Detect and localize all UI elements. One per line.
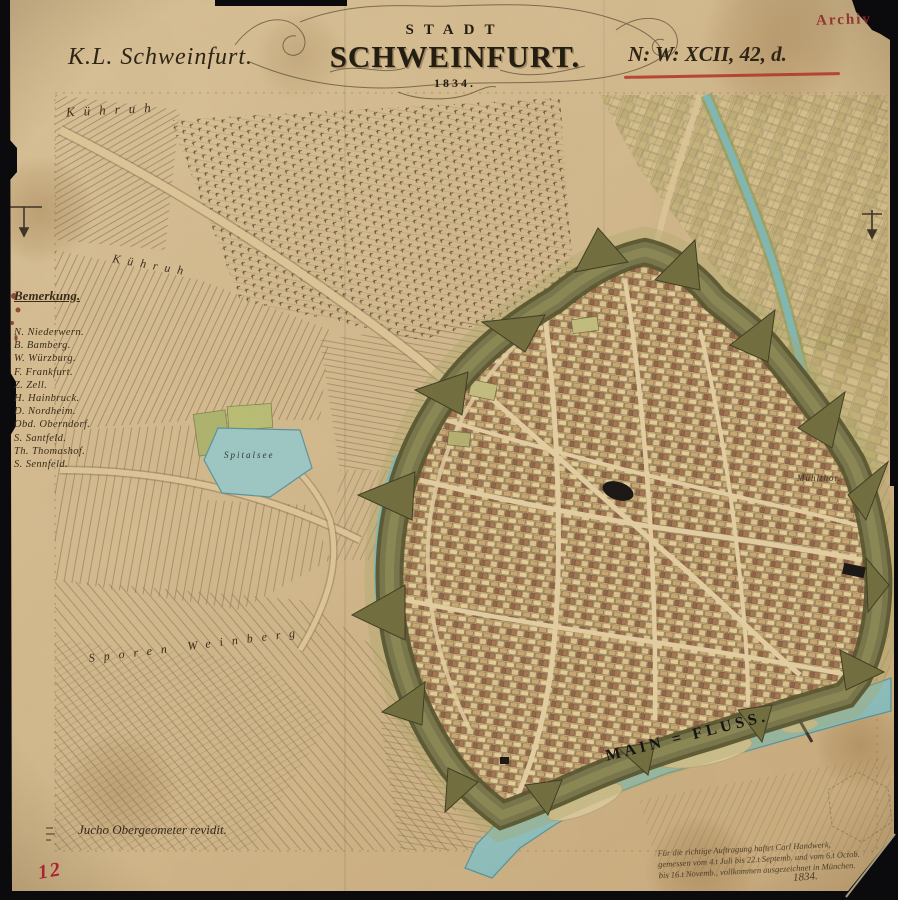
certification-year: 1834.: [793, 870, 819, 884]
map-artwork: [0, 0, 898, 900]
legend-item: F. Frankfurt.: [14, 366, 124, 379]
legend-item: W. Würzburg.: [14, 352, 124, 365]
map-title-block: STADT SCHWEINFURT. 1834.: [300, 22, 610, 91]
map-photo: Archiv K.L. Schweinfurt. STADT SCHWEINFU…: [0, 0, 898, 900]
series-label: K.L. Schweinfurt.: [68, 44, 253, 71]
map-title-upper: STADT: [300, 22, 610, 39]
legend-item: N. Niederwern.: [14, 326, 124, 339]
legend-item: Z. Zell.: [14, 379, 124, 392]
legend-item: Th. Thomashof.: [14, 445, 124, 458]
lake-label: Spitalsee: [224, 450, 275, 460]
revision-note: Jucho Obergeometer revidit.: [78, 822, 227, 838]
legend-item: S. Sennfeld.: [14, 458, 124, 471]
legend-item: H. Hainbruck.: [14, 392, 124, 405]
sheet-number: 12: [36, 858, 64, 885]
archive-stamp: Archiv: [816, 11, 872, 30]
legend-item: Obd. Oberndorf.: [14, 418, 124, 431]
legend-item: D. Nordheim.: [14, 405, 124, 418]
map-content: [0, 0, 898, 900]
map-title-year: 1834.: [300, 76, 610, 91]
mill-gate-label: Mühlthor.: [797, 473, 841, 483]
sheet-reference: N: W: XCII, 42, d.: [628, 42, 787, 67]
legend-item: S. Santfeld.: [14, 432, 124, 445]
legend: Bemerkung. N. Niederwern. B. Bamberg. W.…: [14, 288, 124, 471]
legend-item: B. Bamberg.: [14, 339, 124, 352]
map-title: SCHWEINFURT.: [300, 39, 610, 75]
legend-title: Bemerkung.: [14, 288, 124, 304]
